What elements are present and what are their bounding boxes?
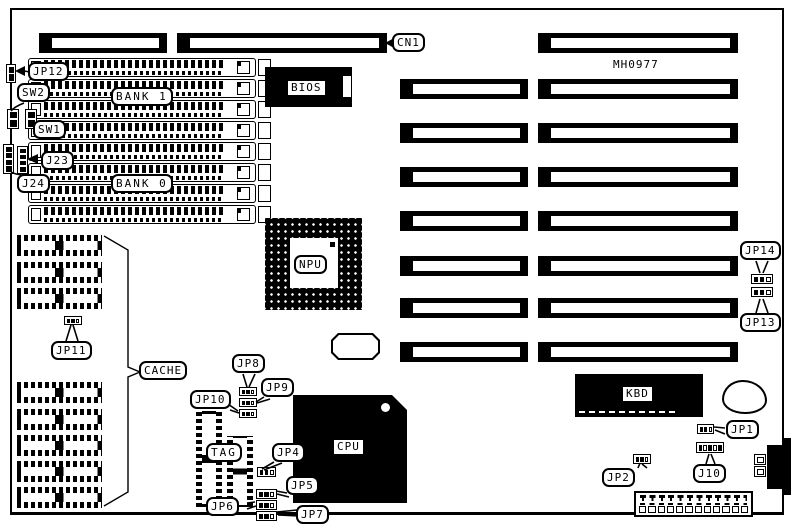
jumper-jp8 [239,387,257,396]
jumper-jp14 [751,274,773,284]
label-npu: NPU [294,255,327,274]
cache-dip-socket [17,288,102,309]
cache-dip-socket [17,435,102,456]
jumper-jp11 [64,316,82,325]
label-jp1: JP1 [726,420,759,439]
jumper-jp7 [256,511,277,521]
label-jp14: JP14 [740,241,781,260]
jumper-jp6 [256,500,277,510]
label-bank0: BANK 0 [111,174,173,193]
keyboard-din-connector-edge [784,438,791,495]
expansion-slot [39,33,167,53]
expansion-slot [538,211,738,231]
cache-dip-socket [17,382,102,403]
power-connector [634,491,753,517]
label-jp13: JP13 [740,313,781,332]
expansion-slot [177,33,387,53]
expansion-slot [538,123,738,143]
board-id-text: MH0977 [613,58,659,71]
label-jp2: JP2 [602,468,635,487]
header-j23 [17,146,28,174]
label-jp6: JP6 [206,497,239,516]
cache-dip-socket [17,409,102,430]
motherboard-diagram: CN1 JP12 SW2 SW1 J23 J24 BANK 1 BANK 0 B… [0,0,791,528]
expansion-slot-short [400,123,528,143]
label-bank1: BANK 1 [111,87,173,106]
expansion-slot [538,298,738,318]
jumper-jp5 [256,489,277,499]
dip-switch-sw2 [7,109,19,129]
simm-end-tab [258,143,271,160]
label-jp10: JP10 [190,390,231,409]
label-j23: J23 [41,151,74,170]
label-j24: J24 [17,174,50,193]
label-j10: J10 [693,464,726,483]
expansion-slot [538,79,738,99]
label-jp11: JP11 [51,341,92,360]
jumper-jp4 [257,467,276,477]
label-jp7: JP7 [296,505,329,524]
label-cache: CACHE [139,361,187,380]
expansion-slot [538,256,738,276]
label-cpu: CPU [333,439,364,455]
cpu-pin1-dot [381,403,390,412]
label-jp9: JP9 [261,378,294,397]
cache-dip-socket [17,235,102,256]
bios-notch [343,76,351,97]
header-j10 [696,442,724,453]
label-sw2: SW2 [17,83,50,102]
din-pin [754,466,766,477]
label-jp5: JP5 [286,476,319,495]
jumper-jp1 [697,424,714,434]
label-cn1: CN1 [392,33,425,52]
cache-dip-socket [17,461,102,482]
keyboard-din-connector [767,445,784,489]
expansion-slot-short [400,256,528,276]
expansion-slot-short [400,167,528,187]
cache-dip-socket [17,262,102,283]
label-jp8: JP8 [232,354,265,373]
expansion-slot-short [400,298,528,318]
label-tag: TAG [206,443,242,462]
jumper-jp13 [751,287,773,297]
simm-end-tab [258,164,271,181]
expansion-slot [538,167,738,187]
oscillator-footprint [331,333,380,360]
simm-socket [28,205,256,224]
label-sw1: SW1 [33,120,66,139]
din-pin [754,454,766,465]
simm-end-tab [258,185,271,202]
header-j24 [3,144,14,174]
cache-dip-socket [17,487,102,508]
expansion-slot-short [400,211,528,231]
jumper-jp10 [239,409,257,418]
label-kbd: KBD [622,386,653,402]
label-jp4: JP4 [272,443,305,462]
jumper-jp9 [239,398,257,407]
pin1-dot [330,242,335,247]
jumper-jp12 [6,64,16,83]
jumper-jp2 [633,454,651,464]
label-jp12: JP12 [28,62,69,81]
kbd-socket-dashes [579,411,675,413]
expansion-slot [538,33,738,53]
expansion-slot [538,342,738,362]
label-bios: BIOS [287,80,326,96]
expansion-slot-short [400,342,528,362]
expansion-slot-short [400,79,528,99]
simm-end-tab [258,122,271,139]
